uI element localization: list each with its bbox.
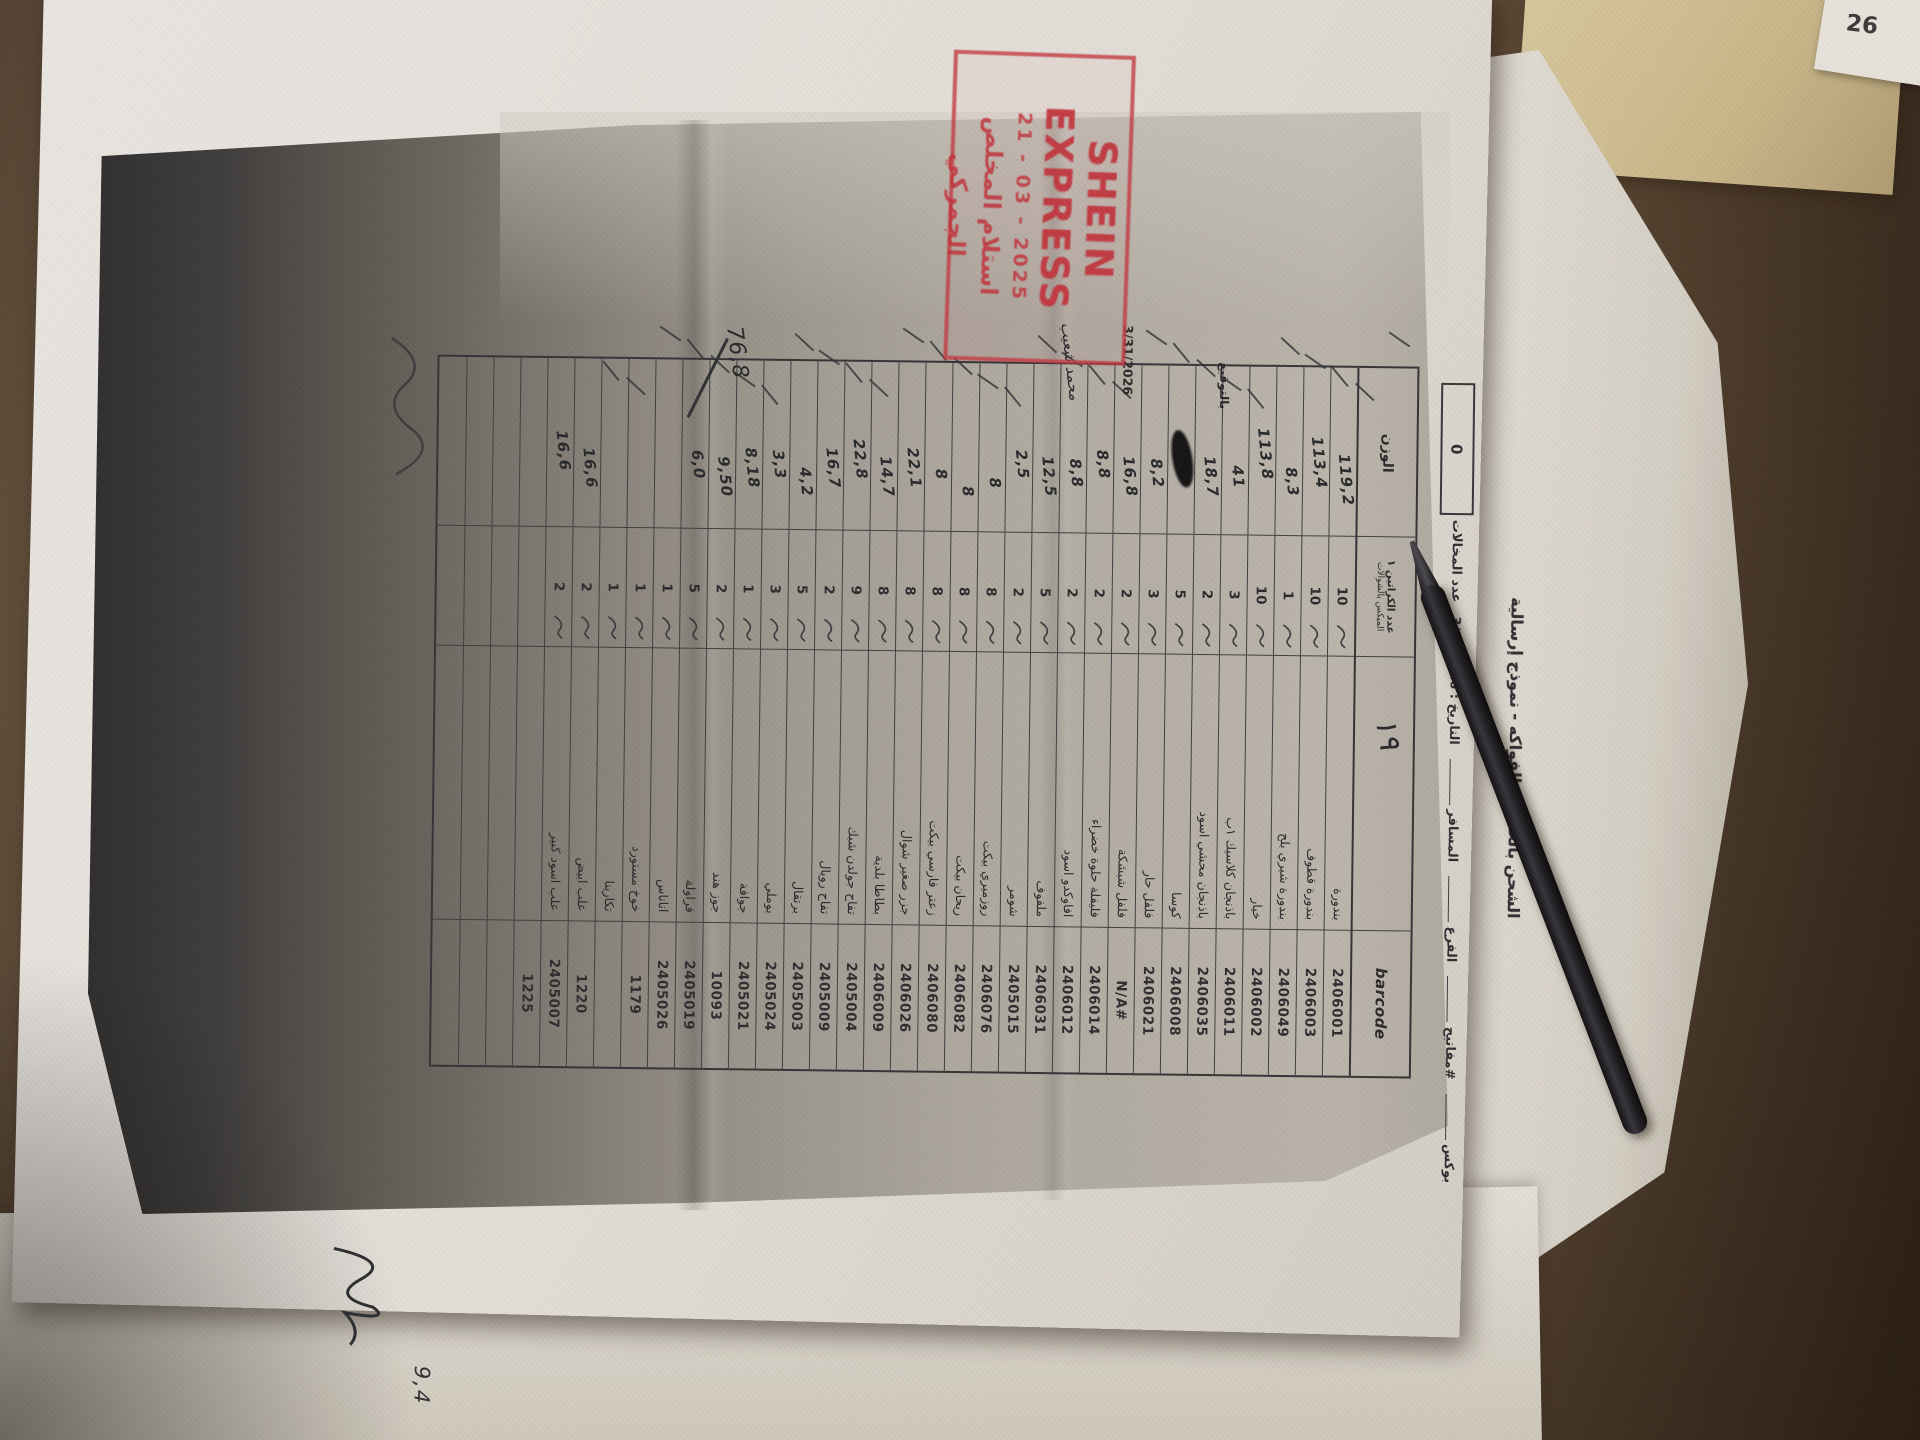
cartons-qty-cell: 5 bbox=[1031, 532, 1058, 652]
barcode-cell bbox=[458, 919, 487, 1065]
weight-cell bbox=[654, 361, 682, 527]
item-name-cell: اناناس bbox=[650, 647, 679, 921]
handwritten-check-mark bbox=[1199, 622, 1215, 648]
barcode-cell: 2406003 bbox=[1295, 929, 1324, 1075]
barcode-cell: 2406080 bbox=[917, 925, 946, 1071]
photo-scene: 26 الشحن بالخضار والفواكه - نموذج إرسالي… bbox=[0, 0, 1920, 1440]
tick-slash bbox=[902, 328, 924, 344]
weight-cell: 8 bbox=[951, 365, 979, 531]
item-name-cell bbox=[461, 645, 490, 919]
barcode-cell bbox=[430, 919, 460, 1065]
item-name-cell: جوز هند bbox=[704, 648, 733, 922]
weight-cell: 16,6 bbox=[573, 360, 601, 526]
cartons-qty-cell: 1 bbox=[599, 527, 626, 647]
barcode-cell: 1179 bbox=[620, 921, 649, 1067]
tick-slash bbox=[794, 333, 814, 352]
tick-slash bbox=[659, 326, 681, 342]
cartons-qty-cell: 8 bbox=[896, 530, 923, 650]
barcode-cell: 2406001 bbox=[1322, 930, 1351, 1076]
handwritten-check-mark bbox=[1091, 621, 1107, 647]
weight-cell: 113,4 bbox=[1302, 369, 1330, 535]
tick-slash bbox=[686, 339, 704, 360]
handwritten-check-mark bbox=[578, 614, 594, 640]
barcode-cell: 2406049 bbox=[1268, 929, 1297, 1075]
barcode-cell: 2405026 bbox=[647, 921, 676, 1067]
item-name-cell: كوسا bbox=[1163, 654, 1192, 928]
handwritten-check-mark bbox=[1145, 621, 1161, 647]
handwritten-check-mark bbox=[1172, 622, 1188, 648]
handwritten-weight: 8,8 bbox=[1066, 458, 1087, 489]
margin-total-weight: 76,8 bbox=[721, 325, 753, 381]
cartons-qty-cell: 2 bbox=[815, 529, 842, 649]
handwritten-weight: 12,5 bbox=[1038, 455, 1060, 498]
cartons-qty-cell: 2 bbox=[1112, 533, 1139, 653]
item-name-cell: فليفلة حلوة خضراء bbox=[1082, 653, 1111, 927]
cartons-qty-cell bbox=[464, 525, 491, 645]
weight-cell: 8 bbox=[978, 365, 1006, 531]
item-name-cell: افاوكدو اسود bbox=[1055, 652, 1084, 926]
item-name-cell: بندورة bbox=[1325, 656, 1354, 930]
barcode-cell: 2405019 bbox=[674, 922, 703, 1068]
handwritten-check-mark bbox=[1280, 623, 1296, 649]
barcode-cell: 2406026 bbox=[890, 924, 919, 1070]
item-name-cell: تفاح جولدن شبك bbox=[839, 650, 868, 924]
handwritten-weight: 22,8 bbox=[849, 438, 871, 481]
handwritten-weight: 8,3 bbox=[1282, 467, 1303, 498]
cartons-qty-cell: 9 bbox=[842, 530, 869, 650]
handwritten-weight: 6,0 bbox=[688, 449, 709, 480]
handwritten-weight: 119,2 bbox=[1335, 453, 1358, 507]
weight-cell bbox=[627, 361, 655, 527]
col-item-name: ١٩ bbox=[1353, 656, 1414, 931]
cartons-qty-cell: 2 bbox=[1193, 534, 1220, 654]
weight-cell: 22,1 bbox=[897, 364, 925, 530]
field-traveler: المسافر bbox=[1444, 759, 1461, 862]
weight-cell: 8,18 bbox=[735, 362, 763, 528]
barcode-cell: 1225 bbox=[512, 920, 541, 1066]
item-name-cell: باذنجان محشي اسود bbox=[1190, 654, 1219, 928]
handwritten-weight: 113,4 bbox=[1308, 435, 1331, 489]
stamp-brand-text: SHEIN EXPRESS bbox=[1030, 63, 1128, 356]
cartons-qty-cell: 1 bbox=[626, 527, 653, 647]
item-name-cell: زعتر فارسي بيكت bbox=[920, 651, 949, 925]
barcode-cell: 2406035 bbox=[1187, 928, 1216, 1074]
tick-slash bbox=[1145, 330, 1167, 346]
cartons-qty-cell: 8 bbox=[869, 530, 896, 650]
weight-cell bbox=[519, 360, 547, 526]
handwritten-weight: 3,3 bbox=[769, 449, 790, 480]
cartons-qty-cell: 10 bbox=[1301, 535, 1328, 655]
table-body: 2406001بندورة10119,22406003بندورة قطوف10… bbox=[431, 357, 1358, 1076]
handwritten-check-mark bbox=[1064, 620, 1080, 646]
handwritten-check-mark bbox=[740, 616, 756, 642]
cartons-qty-cell: 8 bbox=[977, 531, 1004, 651]
barcode-cell: 2405024 bbox=[755, 923, 784, 1069]
cartons-qty-cell: 8 bbox=[923, 531, 950, 651]
item-name-cell: بوملي bbox=[758, 649, 787, 923]
handwritten-note-19: ١٩ bbox=[1368, 715, 1408, 752]
handwritten-check-mark bbox=[983, 619, 999, 645]
weight-cell: 119,2 bbox=[1329, 370, 1357, 536]
barcode-cell: 2405021 bbox=[728, 922, 757, 1068]
tick-slash bbox=[1172, 342, 1190, 363]
cartons-qty-cell: 5 bbox=[1166, 534, 1193, 654]
cartons-qty-cell: 5 bbox=[680, 528, 707, 648]
barcode-cell: 1220 bbox=[566, 920, 595, 1066]
cartons-qty-cell: 2 bbox=[572, 526, 599, 646]
barcode-cell: 2406008 bbox=[1160, 928, 1189, 1074]
shipment-form-document: الشحن بالخضار والفواكه - نموذج إرسالية ب… bbox=[308, 311, 1532, 1190]
cartons-qty-cell: 2 bbox=[1085, 533, 1112, 653]
weight-cell: 16,6 bbox=[546, 360, 574, 526]
cartons-qty-cell bbox=[436, 525, 464, 645]
barcode-cell: 2406009 bbox=[863, 924, 892, 1070]
field-violations: عدد المخالات 0 bbox=[1439, 383, 1476, 603]
ink-blot bbox=[1168, 429, 1197, 489]
weight-cell bbox=[492, 359, 520, 525]
barcode-cell bbox=[593, 921, 622, 1067]
item-name-cell: خيار bbox=[1244, 655, 1273, 929]
handwritten-check-mark bbox=[551, 614, 567, 640]
cartons-qty-cell: 8 bbox=[950, 531, 977, 651]
item-name-cell: باذنجان كلاسيك ١ب bbox=[1217, 654, 1246, 928]
item-name-cell bbox=[515, 646, 544, 920]
handwritten-weight: 9,50 bbox=[714, 455, 736, 498]
weight-cell: 22,8 bbox=[843, 364, 871, 530]
handwritten-check-mark bbox=[605, 615, 621, 641]
barcode-cell: 10093 bbox=[701, 922, 730, 1068]
barcode-cell: 2405009 bbox=[809, 923, 838, 1069]
barcode-cell: 2405007 bbox=[539, 920, 568, 1066]
cartons-qty-cell: 2 bbox=[707, 528, 734, 648]
handwritten-weight: 16,7 bbox=[822, 447, 844, 490]
item-name-cell: فلفل شبشكة bbox=[1109, 653, 1138, 927]
handwritten-check-mark bbox=[767, 617, 783, 643]
weight-cell: 8,3 bbox=[1275, 369, 1303, 535]
handwritten-check-mark bbox=[1334, 624, 1350, 650]
handwritten-check-mark bbox=[686, 616, 702, 642]
weight-cell: 8,2 bbox=[1140, 367, 1168, 533]
weight-cell bbox=[1167, 368, 1195, 534]
barcode-cell: 2406031 bbox=[1025, 926, 1054, 1072]
handwritten-weight: 8,18 bbox=[741, 447, 763, 490]
barcode-cell: 2405015 bbox=[998, 926, 1027, 1072]
cartons-qty-cell: 10 bbox=[1247, 535, 1274, 655]
item-name-cell: برتقال bbox=[785, 649, 814, 923]
margin-signature-label: بالتوقيع bbox=[1217, 362, 1232, 409]
cartons-qty-cell: 3 bbox=[761, 529, 788, 649]
cartons-qty-cell bbox=[491, 525, 518, 645]
handwritten-check-mark bbox=[632, 615, 648, 641]
item-name-cell: جوافة bbox=[731, 648, 760, 922]
handwritten-check-mark bbox=[794, 617, 810, 643]
handwritten-weight: 8,8 bbox=[1093, 449, 1114, 480]
cartons-qty-cell: 2 bbox=[1004, 532, 1031, 652]
item-name-cell: بندورة قطوف bbox=[1298, 655, 1327, 929]
cartons-qty-cell: 2 bbox=[545, 526, 572, 646]
handwritten-weight: 113,8 bbox=[1254, 427, 1277, 481]
tick-slash bbox=[1388, 331, 1410, 347]
barcode-cell: 2406076 bbox=[971, 925, 1000, 1071]
handwritten-weight: 18,7 bbox=[1200, 455, 1222, 498]
handwritten-weight: 16,6 bbox=[553, 429, 575, 472]
handwritten-weight: 22,1 bbox=[903, 447, 925, 490]
item-name-cell: تكارينا bbox=[596, 647, 625, 921]
barcode-cell: 2406002 bbox=[1241, 929, 1270, 1075]
cartons-qty-cell: 2 bbox=[1058, 532, 1085, 652]
field-keys: #مفاتيح bbox=[1442, 976, 1459, 1079]
weight-cell bbox=[600, 361, 628, 527]
barcode-cell: 2406012 bbox=[1052, 926, 1081, 1072]
handwritten-weight: 8 bbox=[986, 476, 1005, 489]
handwritten-weight: 16,8 bbox=[1119, 455, 1141, 498]
weight-cell bbox=[437, 359, 466, 525]
handwritten-check-mark bbox=[1037, 620, 1053, 646]
item-name-cell: ريحان بيكت bbox=[947, 651, 976, 925]
handwritten-weight: 41 bbox=[1228, 465, 1248, 489]
handwritten-weight: 8 bbox=[958, 485, 977, 498]
item-name-cell: تفاح رويال bbox=[812, 649, 841, 923]
item-name-cell: خوخ مستورد bbox=[623, 647, 652, 921]
margin-scribble bbox=[374, 332, 436, 483]
items-table: barcode ١٩ عدد الكراتين ١ المبكس بالشوال… bbox=[429, 355, 1420, 1079]
item-name-cell: فراولة bbox=[677, 648, 706, 922]
handwritten-weight: 14,7 bbox=[876, 455, 898, 498]
weight-cell: 12,5 bbox=[1032, 366, 1060, 532]
stamp-arabic-text: استلام المخلص الجمركي bbox=[936, 59, 1014, 351]
handwritten-check-mark bbox=[956, 619, 972, 645]
weight-cell: 9,50 bbox=[708, 362, 736, 528]
header-fields: بوكس #مفاتيح الفرع المسافر التاريخ : 3/3… bbox=[1420, 331, 1488, 1184]
cartons-qty-cell: 1 bbox=[1274, 535, 1301, 655]
handwritten-check-mark bbox=[902, 618, 918, 644]
item-name-cell: جزر صغير شوال bbox=[893, 650, 922, 924]
weight-cell: 8 bbox=[924, 365, 952, 531]
col-barcode: barcode bbox=[1351, 930, 1411, 1077]
barcode-cell: 2406082 bbox=[944, 925, 973, 1071]
corner-page-number: 26 bbox=[1845, 10, 1880, 40]
field-box: بوكس bbox=[1441, 1093, 1458, 1183]
cartons-qty-cell: 10 bbox=[1328, 536, 1355, 656]
cartons-qty-cell bbox=[518, 526, 545, 646]
handwritten-check-mark bbox=[1253, 623, 1269, 649]
item-name-cell: علب اسود كبير bbox=[542, 646, 571, 920]
item-name-cell: علب ابيض bbox=[569, 646, 598, 920]
barcode-cell bbox=[485, 919, 514, 1065]
handwritten-check-mark bbox=[1010, 620, 1026, 646]
barcode-cell: 2406014 bbox=[1079, 927, 1108, 1073]
violations-value-box: 0 bbox=[1440, 383, 1476, 515]
handwritten-check-mark bbox=[848, 618, 864, 644]
barcode-cell: 2405003 bbox=[782, 923, 811, 1069]
handwritten-weight: 8 bbox=[932, 468, 951, 481]
handwritten-check-mark bbox=[713, 616, 729, 642]
handwritten-check-mark bbox=[1226, 622, 1242, 648]
cartons-qty-cell: 3 bbox=[1139, 533, 1166, 653]
barcode-cell: 2405004 bbox=[836, 924, 865, 1070]
weight-cell: 3,3 bbox=[762, 363, 790, 529]
handwritten-weight: 2,5 bbox=[1012, 449, 1033, 480]
weight-cell: 4,2 bbox=[789, 363, 817, 529]
cartons-qty-cell: 5 bbox=[788, 529, 815, 649]
barcode-cell: 2406011 bbox=[1214, 928, 1243, 1074]
cartons-qty-cell: 1 bbox=[734, 528, 761, 648]
item-name-cell: روزميري بيكت bbox=[974, 651, 1003, 925]
weight-cell: 6,0 bbox=[681, 362, 709, 528]
handwritten-weight: 8,2 bbox=[1147, 458, 1168, 489]
handwritten-check-mark bbox=[821, 617, 837, 643]
cartons-qty-cell: 3 bbox=[1220, 534, 1247, 654]
weight-cell: 14,7 bbox=[870, 364, 898, 530]
handwritten-check-mark bbox=[1118, 621, 1134, 647]
barcode-cell: #N/A bbox=[1106, 927, 1135, 1073]
handwritten-check-mark bbox=[875, 618, 891, 644]
weight-cell: 16,7 bbox=[816, 363, 844, 529]
cartons-qty-cell: 1 bbox=[653, 527, 680, 647]
barcode-cell: 2406021 bbox=[1133, 927, 1162, 1073]
weight-cell bbox=[465, 359, 493, 525]
handwritten-check-mark bbox=[659, 615, 675, 641]
handwritten-weight: 4,2 bbox=[796, 467, 817, 498]
item-name-cell: فلفل حار bbox=[1136, 653, 1165, 927]
item-name-cell bbox=[488, 645, 517, 919]
item-name-cell: ملفوف bbox=[1028, 652, 1057, 926]
weight-cell: 8,8 bbox=[1086, 367, 1114, 533]
item-name-cell: بندورة شيري بلح bbox=[1271, 655, 1300, 929]
handwritten-weight: 16,6 bbox=[579, 447, 601, 490]
handwritten-check-mark bbox=[1307, 623, 1323, 649]
field-branch: الفرع bbox=[1443, 876, 1460, 962]
customs-stamp: SHEIN EXPRESS 21 - 03 - 2025 استلام المخ… bbox=[943, 50, 1136, 366]
corner-shadow bbox=[0, 950, 420, 1440]
table-header-row: barcode ١٩ عدد الكراتين ١ المبكس بالشوال… bbox=[1349, 368, 1418, 1077]
item-name-cell bbox=[433, 645, 463, 919]
tick-slash bbox=[1280, 337, 1300, 356]
item-name-cell: بطاطا بلدية bbox=[866, 650, 895, 924]
item-name-cell: شومر bbox=[1001, 652, 1030, 926]
handwritten-check-mark bbox=[929, 619, 945, 645]
